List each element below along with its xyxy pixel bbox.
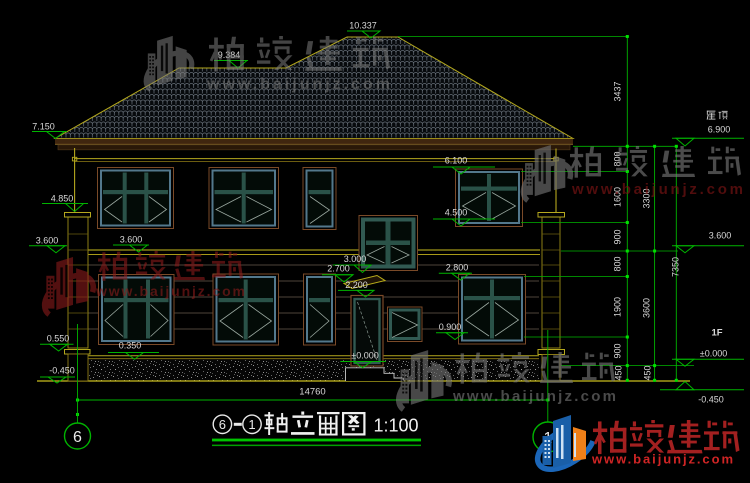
svg-text:14760: 14760 [299, 387, 325, 398]
svg-text:800: 800 [613, 256, 623, 271]
svg-text:0.350: 0.350 [119, 341, 142, 351]
svg-text:1:100: 1:100 [373, 416, 418, 436]
svg-text:3437: 3437 [613, 81, 623, 101]
svg-text:4.850: 4.850 [51, 194, 74, 204]
svg-text:3600: 3600 [642, 298, 652, 318]
svg-text:www.baijunjz.com: www.baijunjz.com [591, 452, 734, 467]
svg-text:6: 6 [219, 417, 226, 432]
svg-text:-0.450: -0.450 [698, 395, 724, 405]
svg-text:0.900: 0.900 [439, 322, 462, 332]
svg-text:450: 450 [643, 365, 653, 380]
svg-text:0.550: 0.550 [47, 334, 70, 344]
svg-text:2.200: 2.200 [345, 280, 368, 290]
svg-text:www.baijunjz.com: www.baijunjz.com [95, 283, 246, 299]
svg-text:2.700: 2.700 [327, 264, 350, 274]
svg-text:-0.450: -0.450 [49, 366, 75, 376]
svg-text:1900: 1900 [613, 297, 623, 317]
svg-text:6.900: 6.900 [708, 125, 731, 135]
svg-text:900: 900 [613, 229, 623, 244]
svg-text:3.600: 3.600 [709, 231, 732, 241]
svg-text:6.100: 6.100 [445, 156, 468, 166]
svg-text:900: 900 [613, 343, 623, 358]
svg-text:7350: 7350 [671, 257, 681, 277]
svg-text:450: 450 [614, 365, 624, 380]
svg-text:3.000: 3.000 [344, 254, 367, 264]
svg-text:1: 1 [248, 417, 255, 432]
svg-text:4.500: 4.500 [445, 208, 468, 218]
svg-text:3.600: 3.600 [120, 235, 143, 245]
svg-text:6: 6 [73, 429, 82, 446]
svg-text:±0.000: ±0.000 [700, 349, 727, 359]
svg-text:±0.000: ±0.000 [351, 351, 378, 361]
svg-text:www.baijunjz.com: www.baijunjz.com [452, 388, 617, 405]
svg-text:3.600: 3.600 [36, 236, 59, 246]
svg-text:1F: 1F [711, 328, 722, 339]
svg-text:2.800: 2.800 [446, 263, 469, 273]
svg-text:10.337: 10.337 [349, 21, 377, 31]
svg-text:7.150: 7.150 [32, 122, 55, 132]
